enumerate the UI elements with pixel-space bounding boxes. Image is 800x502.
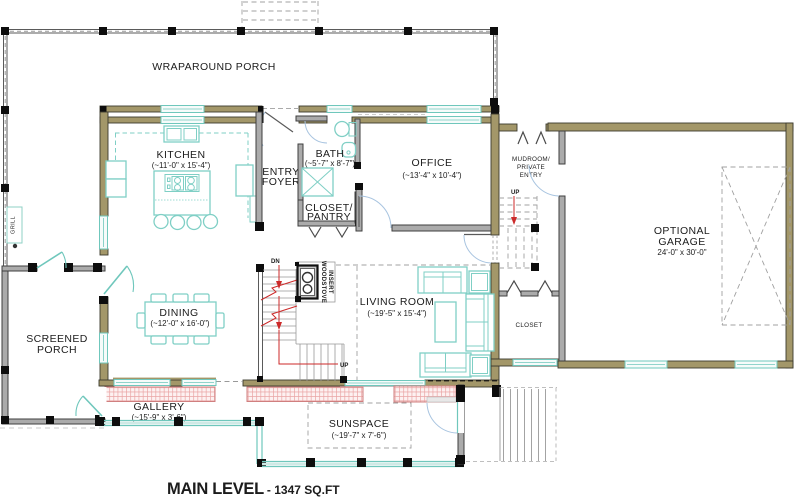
svg-text:MAIN LEVEL- 1347 SQ.FT: MAIN LEVEL- 1347 SQ.FT <box>167 480 340 498</box>
svg-text:FOYER: FOYER <box>262 176 300 188</box>
svg-text:UP: UP <box>511 190 519 196</box>
svg-text:24'-0" x 30'-0": 24'-0" x 30'-0" <box>657 248 706 257</box>
svg-text:CLOSET: CLOSET <box>516 322 543 329</box>
svg-text:GALLERY: GALLERY <box>133 401 184 413</box>
svg-text:GRILL: GRILL <box>11 216 17 234</box>
svg-text:(~13'-4" x 10'-4"): (~13'-4" x 10'-4") <box>402 171 462 180</box>
svg-text:MUDROOM/: MUDROOM/ <box>512 156 550 163</box>
svg-text:(~5'-7" x 8'-7"): (~5'-7" x 8'-7") <box>305 159 356 168</box>
svg-text:INSERT: INSERT <box>327 270 333 294</box>
svg-text:PANTRY: PANTRY <box>307 211 351 223</box>
svg-text:(~19'-5" x 15'-4"): (~19'-5" x 15'-4") <box>367 309 427 318</box>
svg-text:(~12'-0" x 16'-0"): (~12'-0" x 16'-0") <box>150 319 210 328</box>
svg-text:DINING: DINING <box>159 307 198 319</box>
svg-text:DN: DN <box>271 259 280 265</box>
svg-text:WOODSTOVE: WOODSTOVE <box>320 261 326 303</box>
svg-text:KITCHEN: KITCHEN <box>157 149 206 161</box>
svg-text:PRIVATE: PRIVATE <box>517 164 545 171</box>
svg-text:OFFICE: OFFICE <box>412 157 453 169</box>
svg-text:(~19'-7" x 7'-6"): (~19'-7" x 7'-6") <box>332 431 387 440</box>
svg-text:UP: UP <box>340 363 348 369</box>
svg-text:SUNSPACE: SUNSPACE <box>329 418 389 430</box>
svg-text:WRAPAROUND PORCH: WRAPAROUND PORCH <box>152 61 275 73</box>
svg-text:(~11'-0" x 15'-4"): (~11'-0" x 15'-4") <box>152 161 211 170</box>
svg-text:LIVING ROOM: LIVING ROOM <box>360 296 434 308</box>
svg-text:GARAGE: GARAGE <box>658 236 705 248</box>
svg-text:PORCH: PORCH <box>37 344 77 356</box>
